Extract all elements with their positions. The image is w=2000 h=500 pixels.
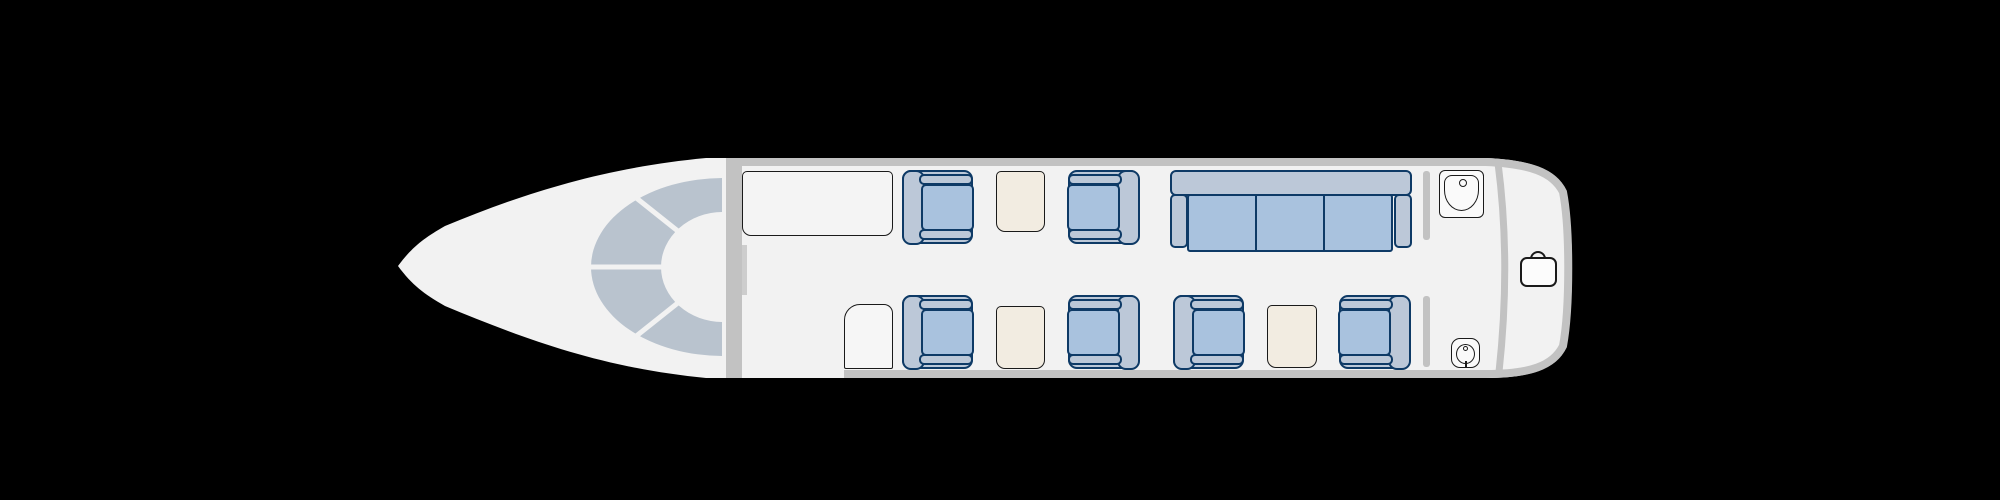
faucet-icon bbox=[1459, 179, 1467, 187]
seat-3b-cushion bbox=[1338, 309, 1391, 356]
suitcase-body-icon bbox=[1520, 257, 1557, 287]
lavatory-sink bbox=[1439, 170, 1484, 218]
entry-door bbox=[844, 304, 893, 369]
seat-1a[interactable] bbox=[902, 170, 973, 244]
table-mid bbox=[996, 306, 1045, 369]
seat-2a-cushion bbox=[921, 309, 974, 356]
forward-closet bbox=[742, 171, 893, 236]
seat-3b[interactable] bbox=[1339, 295, 1410, 369]
seat-2b[interactable] bbox=[1068, 295, 1139, 369]
toilet-stem-icon bbox=[1465, 361, 1467, 367]
seat-3a-cushion bbox=[1192, 309, 1245, 356]
divan-three-seat-cushion-1 bbox=[1187, 194, 1257, 252]
divan-three-seat-cushion-2 bbox=[1255, 194, 1325, 252]
divan-three-seat-cushion-3 bbox=[1323, 194, 1393, 252]
baggage-icon bbox=[1520, 251, 1557, 287]
seat-3a[interactable] bbox=[1173, 295, 1244, 369]
divan-three-seat-cushions bbox=[1187, 194, 1393, 252]
lavatory-toilet bbox=[1451, 338, 1480, 368]
seat-1b[interactable] bbox=[1068, 170, 1139, 244]
seat-1b-cushion bbox=[1067, 184, 1120, 231]
divan-three-seat-armrest-right bbox=[1394, 194, 1412, 248]
divan-three-seat[interactable] bbox=[1170, 170, 1412, 252]
cabin-layer bbox=[0, 0, 2000, 500]
table-forward bbox=[996, 171, 1045, 232]
table-aft bbox=[1267, 305, 1317, 368]
aircraft-floorplan bbox=[0, 0, 2000, 500]
divan-three-seat-armrest-left bbox=[1170, 194, 1188, 248]
seat-2a[interactable] bbox=[902, 295, 973, 369]
seat-1a-cushion bbox=[921, 184, 974, 231]
toilet-flush-icon bbox=[1463, 346, 1468, 351]
divan-three-seat-backrest bbox=[1170, 170, 1412, 196]
seat-2b-cushion bbox=[1067, 309, 1120, 356]
